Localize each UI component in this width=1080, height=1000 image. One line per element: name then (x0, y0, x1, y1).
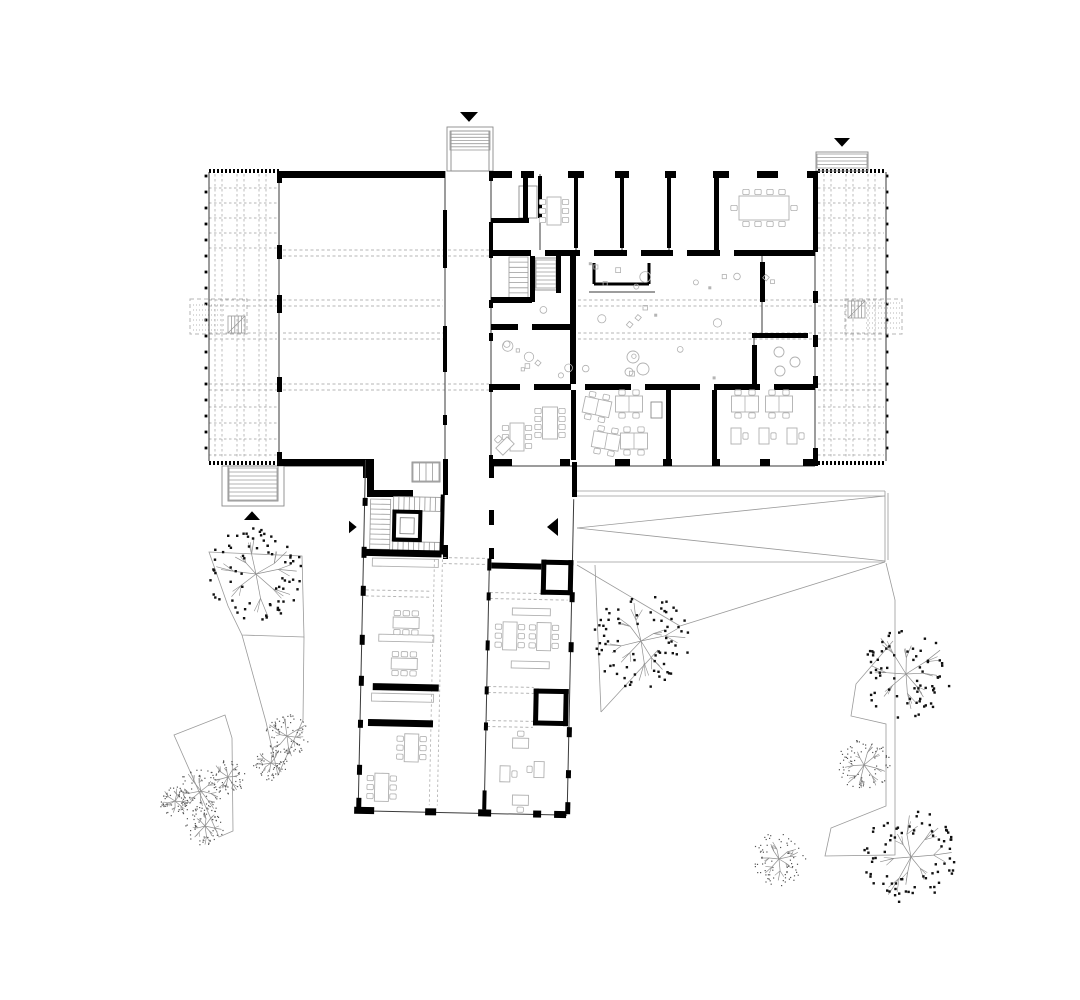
floor-plan-page (0, 0, 1080, 1000)
partition-track-lines (209, 250, 884, 390)
furniture-layer (491, 189, 804, 457)
site-layer (174, 491, 895, 856)
south-wing (354, 460, 577, 818)
thin-lines-layer (209, 127, 886, 506)
elevator (394, 511, 421, 540)
floor-plan-drawing (0, 0, 1080, 1000)
walls-layer (277, 171, 818, 559)
trees-layer (160, 527, 955, 903)
